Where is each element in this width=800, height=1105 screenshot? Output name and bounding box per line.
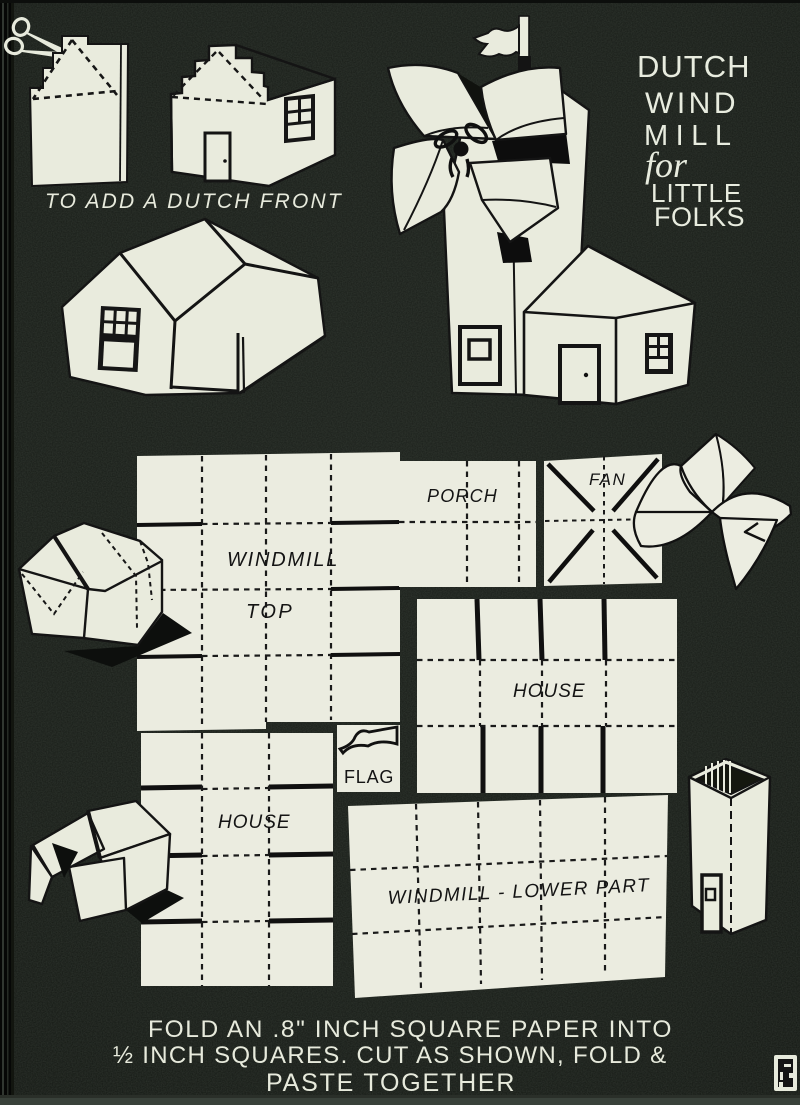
svg-text:WINDMILL: WINDMILL xyxy=(227,549,339,571)
svg-text:HOUSE: HOUSE xyxy=(513,681,586,702)
svg-text:HOUSE: HOUSE xyxy=(218,812,291,833)
svg-text:DUTCH: DUTCH xyxy=(637,49,751,84)
svg-text:TOP: TOP xyxy=(246,601,294,623)
svg-text:FLAG: FLAG xyxy=(344,767,394,787)
svg-text:WIND: WIND xyxy=(645,87,739,120)
svg-text:FOLD AN .8" INCH SQUARE PAPER: FOLD AN .8" INCH SQUARE PAPER INTO xyxy=(148,1016,673,1043)
svg-text:PASTE TOGETHER: PASTE TOGETHER xyxy=(266,1069,516,1097)
svg-text:TO ADD A DUTCH FRONT: TO ADD A DUTCH FRONT xyxy=(45,190,343,213)
svg-text:PORCH: PORCH xyxy=(427,486,498,506)
svg-text:FAN: FAN xyxy=(589,470,626,489)
svg-text:½ INCH SQUARES. CUT AS SHOWN,: ½ INCH SQUARES. CUT AS SHOWN, FOLD & xyxy=(113,1042,667,1069)
svg-text:FOLKS: FOLKS xyxy=(654,202,745,232)
